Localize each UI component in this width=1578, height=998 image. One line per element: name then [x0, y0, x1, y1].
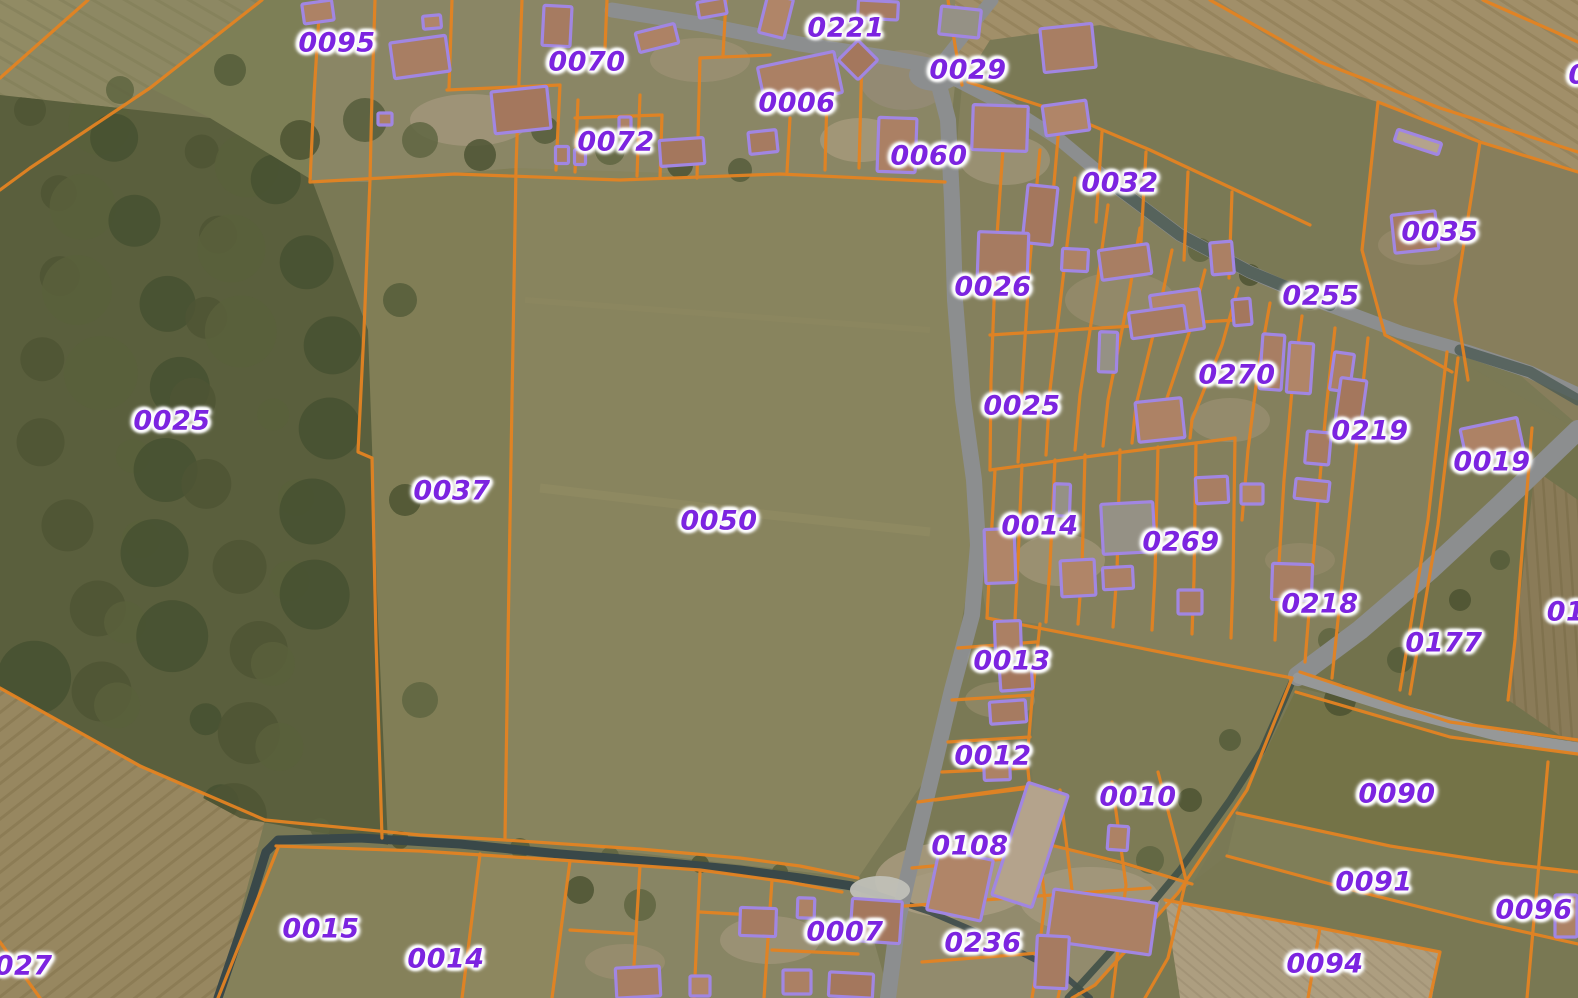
aerial-basemap	[0, 0, 1578, 998]
photo-tint-overlay	[0, 0, 1578, 998]
cadastral-map-viewport[interactable]: 0095007002210029000600720060003200350026…	[0, 0, 1578, 998]
